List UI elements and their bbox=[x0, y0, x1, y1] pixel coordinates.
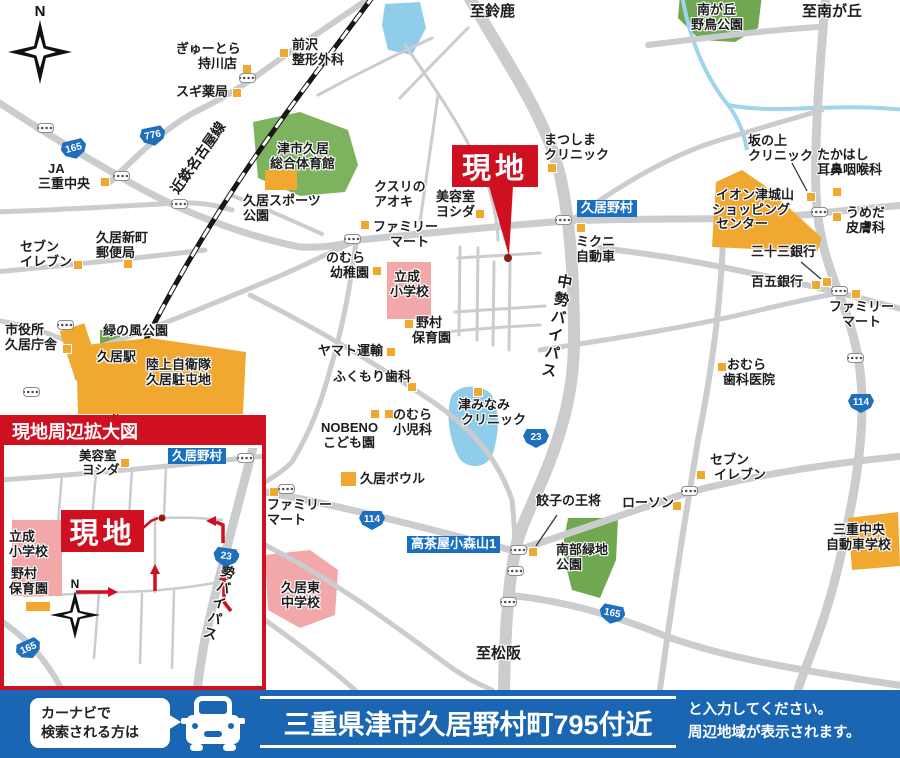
place-gym: 津市久居総合体育館 bbox=[270, 142, 335, 171]
place-aoki: クスリのアオキ bbox=[374, 180, 426, 209]
landmark-marker bbox=[62, 344, 72, 354]
landmark-marker bbox=[279, 48, 289, 58]
landmark-marker bbox=[100, 177, 110, 187]
inset-map: 現地周辺拡大図 bbox=[0, 415, 266, 690]
signal-icon bbox=[37, 123, 54, 133]
place-nomura-shonika: のむら小児科 bbox=[393, 408, 432, 437]
signal-icon bbox=[811, 207, 828, 217]
landmark-marker bbox=[360, 220, 370, 230]
carnav-note: と入力してください。 周辺地域が表示されます。 bbox=[688, 699, 861, 745]
map-canvas: N ぎゅーとら持川店 スギ薬局 JA三重中央 前沢整形外科 津市久居総合体育館 … bbox=[0, 0, 900, 758]
place-sugi: スギ薬局 bbox=[176, 85, 228, 100]
landmark-marker bbox=[475, 209, 485, 219]
signal-icon bbox=[278, 484, 295, 494]
place-tsuminami-clinic: 津みなみクリニック bbox=[458, 398, 526, 427]
place-aeon: イオン津城山ショッピングセンター bbox=[712, 188, 794, 232]
compass-icon: N bbox=[8, 3, 72, 84]
place-familymart-center: ファミリーマート bbox=[373, 220, 438, 249]
landmark-marker bbox=[473, 387, 483, 397]
intersection-hisainomura: 久居野村 bbox=[577, 200, 637, 217]
landmark-marker bbox=[811, 280, 821, 290]
place-seven-east: セブンイレブン bbox=[710, 453, 766, 482]
place-maezawa: 前沢整形外科 bbox=[292, 38, 344, 67]
place-hisaihigashi-chugakko: 久居東中学校 bbox=[281, 581, 320, 610]
signal-icon bbox=[171, 199, 188, 209]
landmark-marker bbox=[806, 192, 816, 202]
place-fukumori: ふくもり歯科 bbox=[333, 370, 411, 385]
signal-icon bbox=[507, 566, 524, 576]
landmark-marker bbox=[386, 347, 396, 357]
place-sports-park: 久居スポーツ公園 bbox=[243, 194, 321, 223]
place-midorinokaze-park: 緑の風公園 bbox=[103, 324, 168, 339]
place-yacho-park: 南が丘野鳥公園 bbox=[691, 3, 743, 32]
landmark-marker bbox=[832, 187, 842, 197]
intersection-takachaya: 高茶屋小森山1 bbox=[407, 536, 500, 553]
place-nomura-yochien: のむら幼稚園 bbox=[326, 251, 369, 280]
inset-compass-n: N bbox=[71, 577, 80, 591]
landmark-marker bbox=[123, 259, 133, 269]
dest-matsusaka: 至松阪 bbox=[476, 646, 521, 663]
dest-minamigaoka: 至南が丘 bbox=[802, 4, 862, 21]
inset-place-yoshida: 美容室ヨシダ bbox=[79, 449, 120, 477]
signal-icon bbox=[57, 320, 74, 330]
place-shiyakusho: 市役所久居庁舎 bbox=[5, 323, 57, 352]
signal-icon bbox=[500, 597, 517, 607]
landmark-marker bbox=[547, 163, 557, 173]
signal-icon bbox=[239, 73, 256, 83]
place-rissei-shogakko: 立成小学校 bbox=[390, 270, 429, 299]
place-yubinkyoku: 久居新町郵便局 bbox=[96, 231, 148, 260]
inset-site-callout: 現地 bbox=[61, 510, 144, 552]
place-ja: JA三重中央 bbox=[38, 162, 90, 191]
inset-title: 現地周辺拡大図 bbox=[4, 419, 266, 445]
landmark-marker bbox=[73, 260, 83, 270]
landmark-marker bbox=[576, 223, 586, 233]
place-hisai-bowl: 久居ボウル bbox=[360, 472, 425, 487]
dest-suzuka: 至鈴鹿 bbox=[470, 4, 515, 21]
inset-intersection-hisainomura: 久居野村 bbox=[168, 448, 226, 464]
signal-icon bbox=[344, 234, 361, 244]
car-icon bbox=[178, 693, 248, 755]
signal-icon bbox=[510, 545, 527, 555]
carnav-bubble-line1: カーナビで bbox=[41, 704, 170, 723]
signal-icon bbox=[847, 353, 864, 363]
place-nomura-hoikuen: 野村保育園 bbox=[412, 316, 451, 345]
place-gyoza-ohsho: 餃子の王将 bbox=[536, 494, 601, 509]
place-hisai-station: 久居駅 bbox=[97, 350, 136, 365]
place-sanjusan-bank: 三十三銀行 bbox=[751, 245, 816, 260]
compass-n-label: N bbox=[35, 3, 46, 20]
place-omura-dental: おむら歯科医院 bbox=[723, 358, 775, 387]
landmark-marker bbox=[851, 289, 861, 299]
landmark-marker bbox=[528, 547, 538, 557]
landmark-marker bbox=[232, 88, 242, 98]
place-yamato: ヤマト運輸 bbox=[318, 344, 383, 359]
inset-site-dot bbox=[159, 515, 166, 522]
place-matsushima: まつしまクリニック bbox=[544, 133, 609, 162]
signal-icon bbox=[23, 387, 40, 397]
carnav-bar: カーナビで 検索される方は 三重県津市久居野村町795付近 と入力してください。… bbox=[0, 690, 900, 758]
place-jieitai: 陸上自衛隊久居駐屯地 bbox=[146, 358, 211, 387]
place-nanbu-ryokuchi: 南部緑地公園 bbox=[556, 543, 608, 572]
signal-icon bbox=[681, 486, 698, 496]
place-mikuni: ミクニ自動車 bbox=[576, 235, 615, 264]
landmark-marker bbox=[370, 409, 380, 419]
place-hyakugo-bank: 百五銀行 bbox=[751, 275, 803, 290]
place-lawson: ローソン bbox=[622, 496, 674, 511]
landmark-marker bbox=[832, 212, 842, 222]
place-familymart-south: ファミリーマート bbox=[267, 498, 332, 527]
landmark-marker bbox=[696, 470, 706, 480]
place-sakanoue: 坂の上クリニック bbox=[748, 134, 813, 163]
carnav-bubble: カーナビで 検索される方は bbox=[30, 698, 170, 748]
carnav-bubble-line2: 検索される方は bbox=[41, 723, 170, 742]
signal-icon bbox=[237, 453, 254, 463]
place-seven-west: セブンイレブン bbox=[20, 240, 72, 269]
place-takahashi: たかはし耳鼻咽喉科 bbox=[817, 148, 882, 177]
place-yoshida: 美容室ヨシダ bbox=[436, 190, 475, 219]
signal-icon bbox=[113, 171, 130, 181]
site-callout: 現地 bbox=[452, 145, 538, 187]
inset-place-nomura-hoikuen: 野村保育園 bbox=[9, 567, 48, 596]
place-driving-school: 三重中央自動車学校 bbox=[826, 523, 891, 552]
carnav-address: 三重県津市久居野村町795付近 bbox=[260, 696, 676, 748]
place-umeda: うめだ皮膚科 bbox=[846, 206, 885, 235]
signal-icon bbox=[831, 286, 848, 296]
signal-icon bbox=[555, 215, 572, 225]
inset-place-rissei: 立成小学校 bbox=[9, 530, 48, 559]
landmark-marker bbox=[120, 458, 130, 468]
place-familymart-east: ファミリーマート bbox=[829, 300, 894, 329]
landmark-marker bbox=[822, 277, 832, 287]
place-gyutora: ぎゅーとら持川店 bbox=[176, 42, 241, 71]
landmark-marker bbox=[372, 266, 382, 276]
place-nobeno: NOBENOこども園 bbox=[321, 421, 378, 450]
inset-landmark-area bbox=[26, 602, 50, 611]
